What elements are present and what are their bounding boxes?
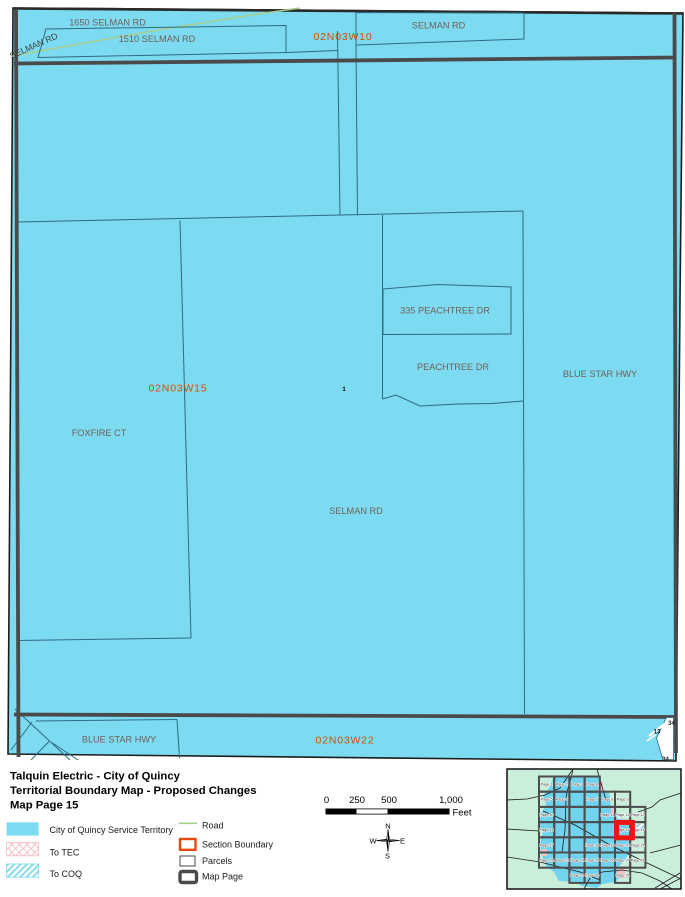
svg-text:500: 500	[381, 795, 397, 806]
svg-text:Page 1: Page 1	[541, 783, 553, 787]
svg-text:02N03W10: 02N03W10	[314, 31, 373, 43]
svg-text:Road: Road	[202, 821, 224, 831]
svg-text:W: W	[369, 837, 377, 846]
svg-text:34: 34	[662, 757, 669, 763]
svg-text:Page 26: Page 26	[600, 859, 614, 863]
svg-text:Page 8: Page 8	[601, 798, 613, 802]
svg-text:Page 12: Page 12	[616, 813, 630, 817]
svg-text:Page 11: Page 11	[600, 813, 614, 817]
svg-text:Page 23: Page 23	[555, 859, 569, 863]
svg-text:Parcels: Parcels	[202, 856, 233, 866]
svg-text:1510 SELMAN RD: 1510 SELMAN RD	[119, 34, 196, 44]
svg-text:Page 27: Page 27	[616, 859, 630, 863]
svg-text:BLUE STAR HWY: BLUE STAR HWY	[563, 369, 637, 379]
svg-text:Page 5: Page 5	[541, 798, 553, 802]
svg-text:S: S	[385, 852, 390, 861]
svg-text:City of Quincy Service Territo: City of Quincy Service Territory	[50, 825, 174, 835]
svg-text:250: 250	[349, 795, 365, 806]
svg-text:Page 22: Page 22	[540, 859, 554, 863]
svg-text:335 PEACHTREE DR: 335 PEACHTREE DR	[400, 306, 490, 316]
svg-text:Page 17: Page 17	[540, 843, 554, 847]
svg-text:13: 13	[654, 730, 661, 736]
svg-text:Page 10: Page 10	[540, 813, 554, 817]
svg-text:Page 25: Page 25	[585, 859, 599, 863]
svg-text:Section Boundary: Section Boundary	[202, 840, 274, 850]
svg-text:E: E	[400, 837, 405, 846]
svg-text:Talquin Electric - City of Qui: Talquin Electric - City of Quincy	[10, 771, 181, 783]
svg-text:Page 24: Page 24	[570, 859, 584, 863]
svg-text:PEACHTREE DR: PEACHTREE DR	[417, 362, 489, 372]
svg-text:SELMAN RD: SELMAN RD	[412, 21, 466, 31]
svg-text:Page 9: Page 9	[617, 798, 629, 802]
svg-text:1,000: 1,000	[439, 795, 463, 806]
svg-text:Page 28: Page 28	[631, 859, 645, 863]
svg-text:Page 29: Page 29	[570, 874, 584, 878]
svg-text:02N03W15: 02N03W15	[149, 383, 208, 395]
svg-text:BLUE STAR HWY: BLUE STAR HWY	[82, 735, 156, 745]
svg-text:Page 30: Page 30	[585, 874, 599, 878]
svg-text:Page 6: Page 6	[556, 798, 568, 802]
svg-text:Page 19: Page 19	[600, 843, 614, 847]
svg-text:Page 4: Page 4	[586, 783, 598, 787]
svg-text:Feet: Feet	[453, 808, 472, 819]
svg-text:Page 13: Page 13	[631, 813, 645, 817]
svg-text:Page 20: Page 20	[616, 843, 630, 847]
svg-text:34: 34	[668, 721, 675, 727]
svg-text:SELMAN RD: SELMAN RD	[329, 506, 383, 516]
svg-text:1: 1	[342, 386, 346, 393]
svg-text:0: 0	[324, 795, 329, 806]
svg-text:Page 14: Page 14	[540, 828, 554, 832]
svg-text:Page 18: Page 18	[585, 843, 599, 847]
svg-text:Page 3: Page 3	[571, 783, 583, 787]
svg-text:1650 SELMAN RD: 1650 SELMAN RD	[69, 18, 146, 28]
svg-text:FOXFIRE CT: FOXFIRE CT	[72, 428, 127, 438]
svg-text:To COQ: To COQ	[50, 869, 83, 879]
svg-text:Map Page 15: Map Page 15	[10, 800, 78, 812]
svg-text:Map Page: Map Page	[202, 872, 243, 882]
svg-text:N: N	[385, 822, 390, 831]
svg-text:Territorial Boundary Map - Pro: Territorial Boundary Map - Proposed Chan…	[10, 785, 256, 797]
svg-text:Page 2: Page 2	[556, 783, 568, 787]
svg-text:02N03W22: 02N03W22	[316, 735, 375, 747]
svg-text:Page 21: Page 21	[631, 843, 645, 847]
svg-text:Page 7: Page 7	[586, 798, 598, 802]
svg-text:To TEC: To TEC	[50, 848, 80, 858]
svg-text:Page 31: Page 31	[616, 874, 630, 878]
